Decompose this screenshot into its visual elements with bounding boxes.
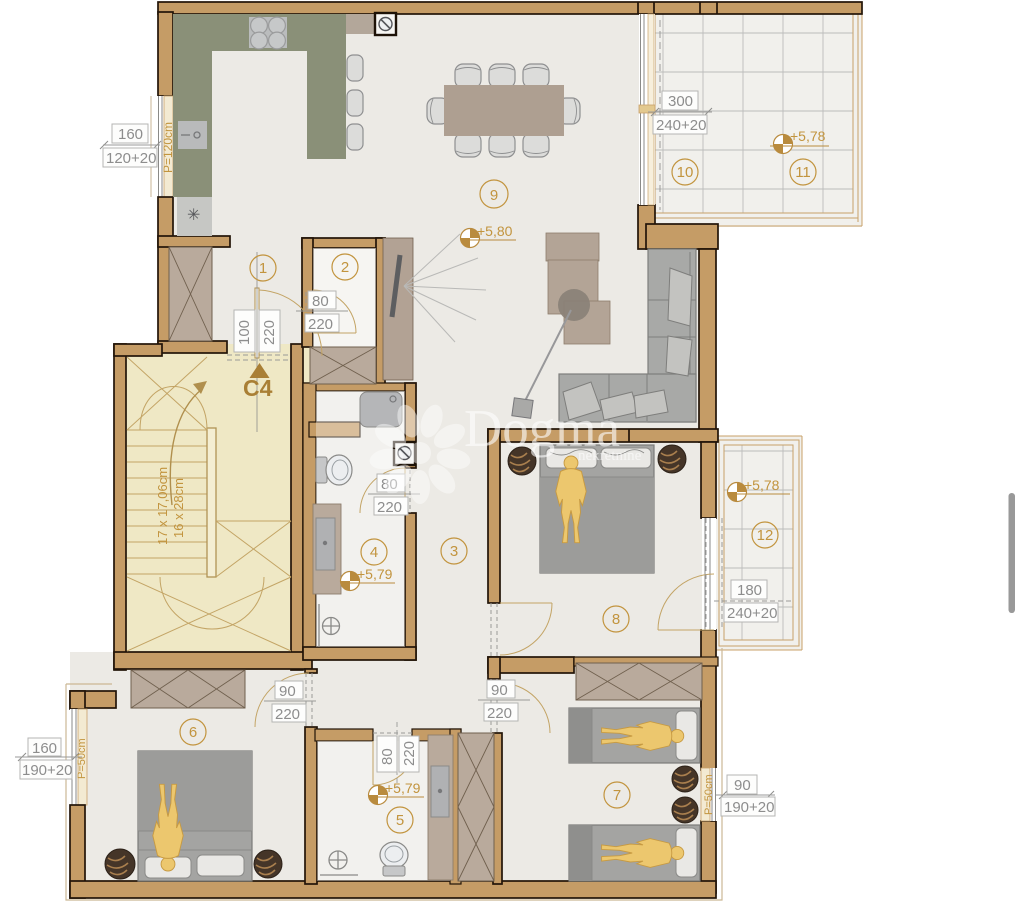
svg-text:80: 80 — [312, 293, 329, 310]
svg-text:220: 220 — [261, 320, 278, 345]
svg-text:80: 80 — [379, 748, 396, 765]
svg-text:90: 90 — [734, 777, 751, 794]
svg-text:190+20: 190+20 — [724, 799, 774, 816]
svg-text:300: 300 — [668, 93, 693, 110]
svg-text:240+20: 240+20 — [656, 117, 706, 134]
svg-text:220: 220 — [308, 316, 333, 333]
svg-text:2: 2 — [341, 259, 349, 276]
svg-text:P=50cm: P=50cm — [703, 774, 715, 815]
svg-text:12: 12 — [757, 527, 774, 544]
svg-text:11: 11 — [795, 164, 811, 181]
svg-text:17 x 17,06cm: 17 x 17,06cm — [155, 467, 170, 545]
svg-text:✳: ✳ — [187, 207, 200, 224]
svg-text:220: 220 — [275, 706, 300, 723]
svg-text:220: 220 — [377, 499, 402, 516]
svg-text:1: 1 — [259, 260, 267, 277]
svg-text:+5,78: +5,78 — [744, 477, 780, 493]
svg-text:P=120cm: P=120cm — [161, 122, 175, 173]
svg-text:240+20: 240+20 — [727, 605, 777, 622]
svg-text:16 x 28cm: 16 x 28cm — [171, 478, 186, 538]
svg-text:90: 90 — [279, 683, 296, 700]
svg-text:160: 160 — [32, 740, 57, 757]
svg-text:C4: C4 — [243, 375, 273, 401]
svg-text:180: 180 — [737, 582, 762, 599]
svg-text:220: 220 — [487, 705, 512, 722]
svg-text:9: 9 — [490, 187, 498, 204]
svg-text:nekretnine: nekretnine — [578, 448, 642, 464]
svg-text:160: 160 — [118, 126, 143, 143]
svg-text:120+20: 120+20 — [106, 150, 156, 167]
svg-text:3: 3 — [450, 543, 458, 560]
svg-text:10: 10 — [677, 164, 694, 181]
svg-text:+5,79: +5,79 — [357, 566, 393, 582]
svg-text:190+20: 190+20 — [22, 762, 72, 779]
svg-text:P=50cm: P=50cm — [76, 738, 88, 779]
svg-text:4: 4 — [370, 544, 378, 561]
svg-text:+5,79: +5,79 — [385, 780, 421, 796]
svg-text:+5,78: +5,78 — [790, 128, 826, 144]
svg-text:8: 8 — [612, 611, 620, 628]
svg-text:7: 7 — [613, 787, 621, 804]
svg-text:100: 100 — [236, 320, 253, 345]
svg-text:6: 6 — [189, 724, 197, 741]
svg-text:220: 220 — [401, 741, 418, 766]
svg-text:+5,80: +5,80 — [477, 223, 513, 239]
svg-text:90: 90 — [491, 682, 508, 699]
svg-text:5: 5 — [396, 812, 404, 829]
